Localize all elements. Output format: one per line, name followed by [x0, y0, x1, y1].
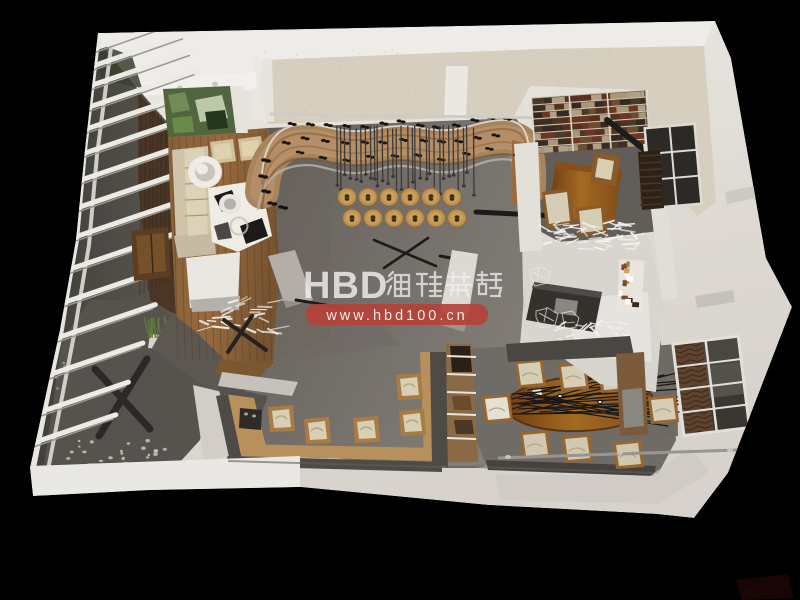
svg-text:d100: d100	[744, 584, 773, 599]
svg-text:www.hbd100.cn: www.hbd100.cn	[325, 308, 467, 324]
svg-text:HBD: HBD	[303, 265, 388, 307]
